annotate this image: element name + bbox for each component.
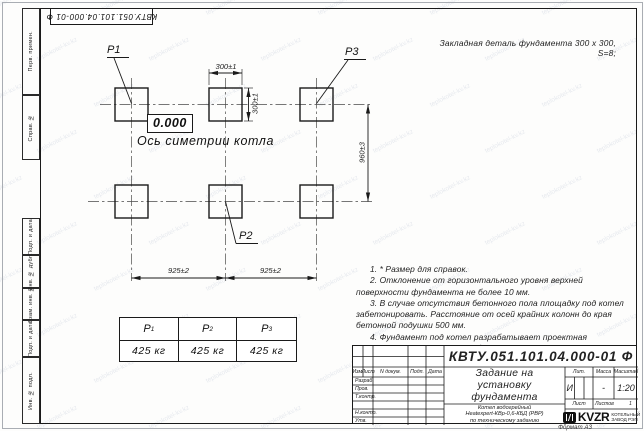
load-table-header-p3: P3 — [237, 318, 296, 341]
sheets-value: 1 — [623, 399, 638, 409]
title-block-designation: КВТУ.051.101.04.000-01 Ф — [444, 346, 638, 367]
tb-col-dokum: N докум. — [373, 367, 408, 377]
p2-subscript: 2 — [209, 326, 213, 333]
note-2: 2. Отклонение от горизонтального уровня … — [356, 275, 632, 298]
product-name: Котел водогрейный Heatexpert-КВр-0,6-КБД… — [444, 404, 565, 425]
tb-row-tkontr: Т.контр. — [353, 393, 373, 401]
elevation-mark: 0.000 — [147, 114, 193, 133]
kvzr-logo-text: KVZR — [578, 410, 609, 424]
rotated-designation-text: КВТУ.051.101.04.000-01 Ф — [46, 12, 157, 21]
margin-label: Перв. примен. — [28, 31, 34, 71]
margin-cell-podp-data-1: Подп. и дата — [22, 218, 40, 255]
kvzr-logo-icon — [563, 412, 576, 423]
note-3: 3. В случае отсутствия бетонного пола пл… — [356, 298, 632, 332]
company-cell: KVZR КОТЕЛЬНЫЙ ЗАВОД РЭП — [565, 409, 638, 425]
rotated-designation-stamp: КВТУ.051.101.04.000-01 Ф — [50, 8, 153, 25]
note-1: 1. * Размер для справок. — [356, 264, 632, 275]
sheets-label: Листов — [593, 399, 623, 409]
margin-cell-podp-data-2: Подп. и дата — [22, 320, 40, 357]
margin-label: Справ. № — [28, 114, 34, 141]
dim-925-left: 925±2 — [156, 266, 201, 275]
title-block: КВТУ.051.101.04.000-01 Ф Изм. Лист N док… — [352, 345, 637, 424]
scale-value: 1:20 — [614, 377, 638, 399]
company-name: КОТЕЛЬНЫЙ ЗАВОД РЭП — [611, 412, 640, 422]
product-name-line2: Heatexpert-КВр-0,6-КБД (РВР) — [465, 411, 543, 418]
document-title-line1: Задание на — [476, 368, 534, 380]
drawing-sheet: { "page": { "watermark_text": "teplokote… — [0, 0, 644, 430]
margin-cell-sprav-n: Справ. № — [22, 95, 40, 160]
document-title: Задание на установку фундамента — [444, 367, 565, 404]
point-label-p1: P1 — [107, 44, 120, 56]
tb-row-empty — [353, 401, 373, 409]
point-label-p3: P3 — [345, 46, 358, 58]
margin-label: Инв. № подл. — [28, 372, 34, 410]
lit-value: И — [565, 377, 575, 399]
dim-300-vertical: 300±1 — [251, 87, 260, 121]
p3-symbol: P — [261, 323, 268, 335]
tb-row-nkontr: Н.контр. — [353, 409, 373, 417]
tb-col-podp: Подп. — [408, 367, 426, 377]
product-name-line1: Котел водогрейный — [478, 405, 531, 412]
document-title-line3: фундамента — [471, 392, 537, 404]
dim-300-horizontal: 300±1 — [205, 62, 247, 71]
p1-symbol: P — [143, 323, 150, 335]
embed-plate-annotation: Закладная деталь фундамента 300 х 300, S… — [430, 38, 616, 58]
margin-cell-perv-primen: Перв. примен. — [22, 8, 40, 95]
scale-label: Масштаб — [614, 367, 638, 377]
load-table-value-p3: 425 кг — [237, 341, 296, 361]
load-table-value-p2: 425 кг — [179, 341, 238, 361]
tb-col-list: Лист — [363, 367, 373, 377]
margin-label: Подп. и дата — [28, 321, 34, 357]
lit-label: Лит. — [565, 367, 593, 377]
mass-value: - — [593, 377, 614, 399]
margin-cell-inv-podl: Инв. № подл. — [22, 357, 40, 424]
dim-960-vertical: 960±3 — [358, 134, 367, 172]
company-name-line2: ЗАВОД РЭП — [611, 417, 637, 422]
boiler-symmetry-axis-label: Ось симетрии котла — [137, 134, 274, 148]
dim-925-right: 925±2 — [248, 266, 293, 275]
load-table-value-p1: 425 кг — [120, 341, 179, 361]
tb-col-data: Дата — [426, 367, 444, 377]
margin-label: Подп. и дата — [28, 219, 34, 255]
margin-label: Взам. инв. № — [28, 285, 34, 323]
load-table-header-p2: P2 — [179, 318, 238, 341]
p1-subscript: 1 — [151, 326, 155, 333]
margin-cell-vzam-inv: Взам. инв. № — [22, 288, 40, 320]
load-table: P1 P2 P3 425 кг 425 кг 425 кг — [119, 317, 297, 362]
document-title-line2: установку — [478, 380, 532, 392]
p3-subscript: 3 — [269, 326, 273, 333]
margin-cell-inv-dubl: Инв. № дубл. — [22, 255, 40, 288]
tb-row-razrab: Разраб. — [353, 377, 373, 385]
mass-label: Масса — [593, 367, 614, 377]
point-label-p2: P2 — [239, 230, 252, 242]
tb-row-utv: Утв. — [353, 417, 373, 425]
tb-row-prov: Пров. — [353, 385, 373, 393]
sheet-label: Лист — [565, 399, 593, 409]
load-table-header-p1: P1 — [120, 318, 179, 341]
technical-notes: 1. * Размер для справок. 2. Отклонение о… — [356, 264, 632, 354]
